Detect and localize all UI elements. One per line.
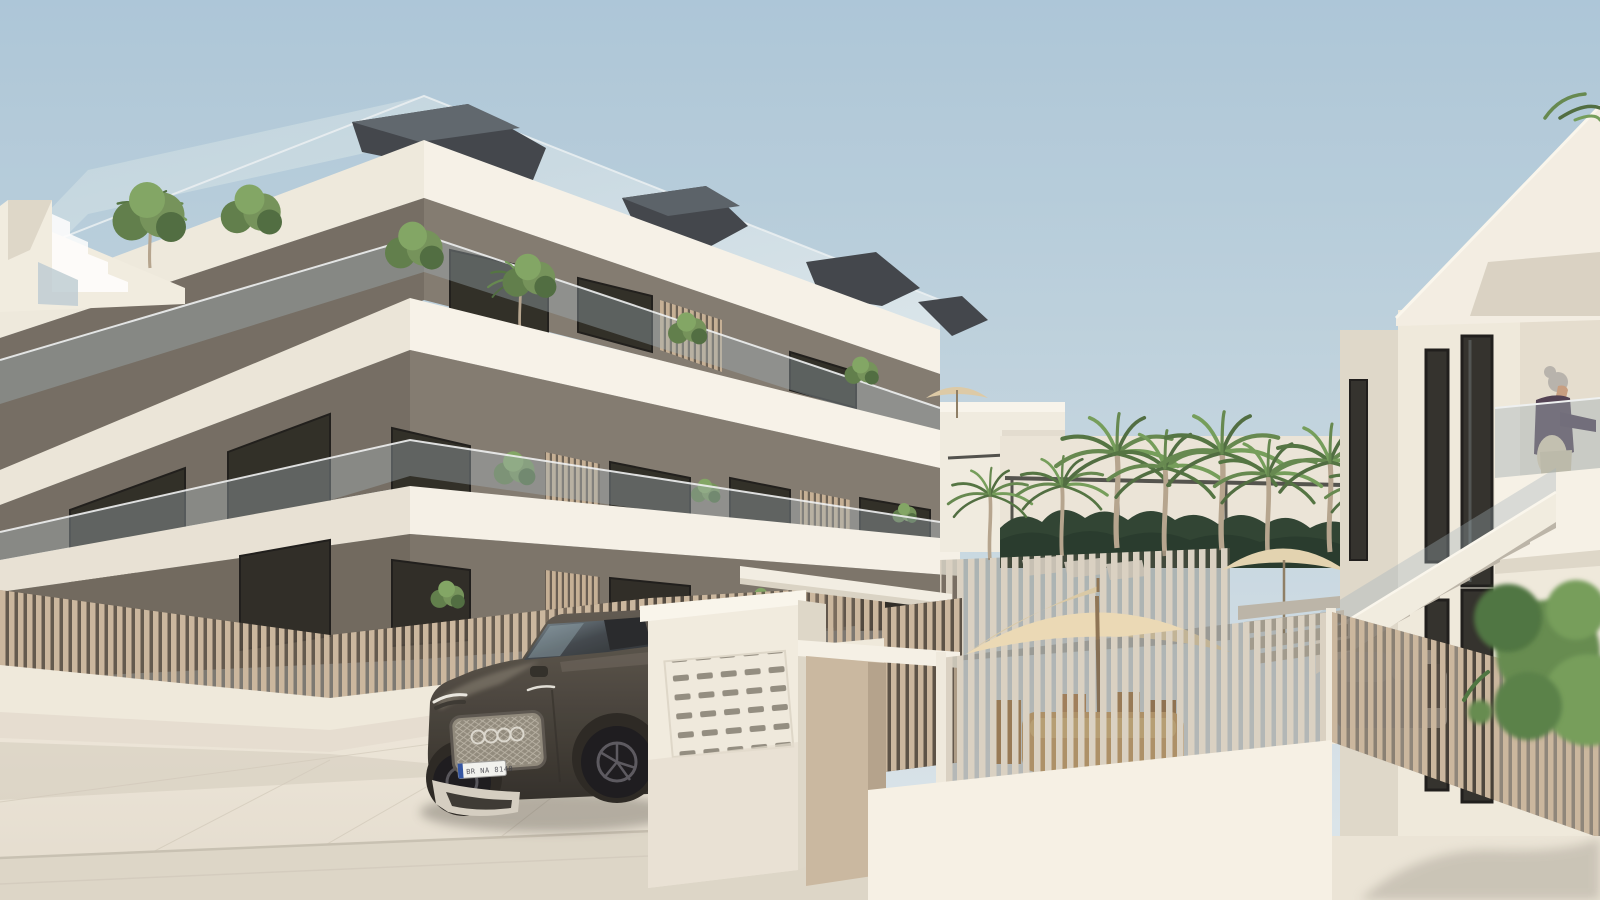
architectural-render: New-build apartment complex — exterior 3… (0, 0, 1600, 900)
render-canvas: New-build apartment complex — exterior 3… (0, 0, 1600, 900)
tone-overlay (0, 0, 1600, 900)
